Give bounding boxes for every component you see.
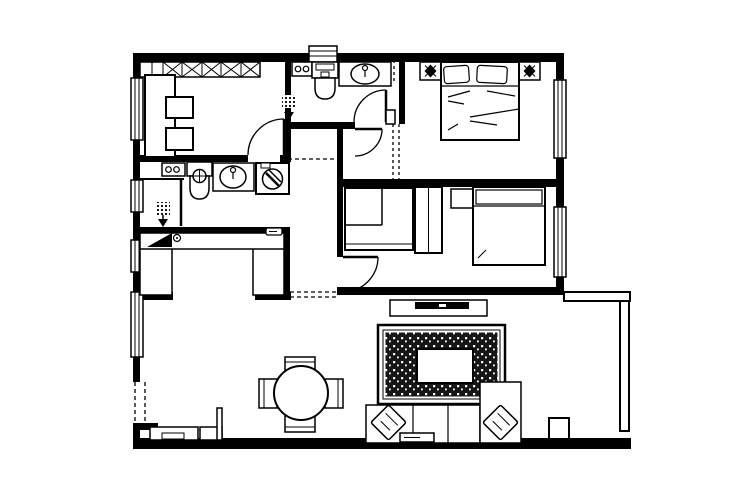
door-bath1-arc <box>354 90 386 122</box>
door-bedroom2-arc <box>343 257 378 292</box>
wall-left-seg4 <box>133 272 140 292</box>
shower1-head <box>282 95 296 108</box>
toilet1-tank-detail <box>316 64 334 70</box>
wall-hall-right <box>337 125 343 257</box>
bedroom2-pillow <box>476 190 542 204</box>
door-study-arc <box>248 119 284 155</box>
wall-right-seg1 <box>556 53 564 80</box>
window-bath1-top <box>309 46 337 62</box>
window-right-1 <box>554 80 566 158</box>
column-notch <box>549 418 569 439</box>
washer-panel <box>261 163 270 168</box>
study-chair-1 <box>166 97 193 118</box>
window-living-top <box>564 292 630 301</box>
wall-kitchen-right <box>284 227 290 292</box>
toilet1-bowl <box>315 78 335 99</box>
door-jamb-box <box>386 110 395 124</box>
window-left-2 <box>131 180 143 212</box>
wall-bedroom2-bottom <box>337 287 564 295</box>
tv-screen-notch <box>439 304 446 307</box>
floor-plan-svg <box>0 0 740 500</box>
wall-left-seg2 <box>133 140 140 180</box>
bedroom2-desk <box>345 188 413 250</box>
door-hall-arc <box>355 129 382 156</box>
window-left-4 <box>131 292 143 357</box>
master-pillow-2 <box>477 65 508 84</box>
master-pillow-1 <box>443 65 469 84</box>
wall-top <box>133 53 564 62</box>
wall-bath1-right <box>399 62 405 124</box>
toilet1-flush <box>321 72 329 77</box>
wall-left-seg1 <box>133 53 140 78</box>
wall-left-seg3 <box>133 212 140 240</box>
entry-partition <box>217 408 222 440</box>
window-left-1 <box>131 78 143 140</box>
bedroom2-nightstand <box>451 189 473 208</box>
wall-bath1-bottom <box>291 122 355 129</box>
shoe-cabinet-1-inner <box>162 433 184 439</box>
shower2-head <box>156 202 170 215</box>
floor-plan-page <box>0 0 740 500</box>
study-chair-2 <box>166 128 193 150</box>
wall-master-bottom <box>343 179 564 187</box>
shower2-arrow <box>158 219 168 227</box>
kitchen-knob-dot <box>176 237 178 239</box>
window-living-right <box>620 301 629 431</box>
dining-table <box>274 366 328 420</box>
coffee-table <box>417 349 473 383</box>
wall-left-seg5 <box>133 357 140 382</box>
window-right-2 <box>554 207 566 277</box>
